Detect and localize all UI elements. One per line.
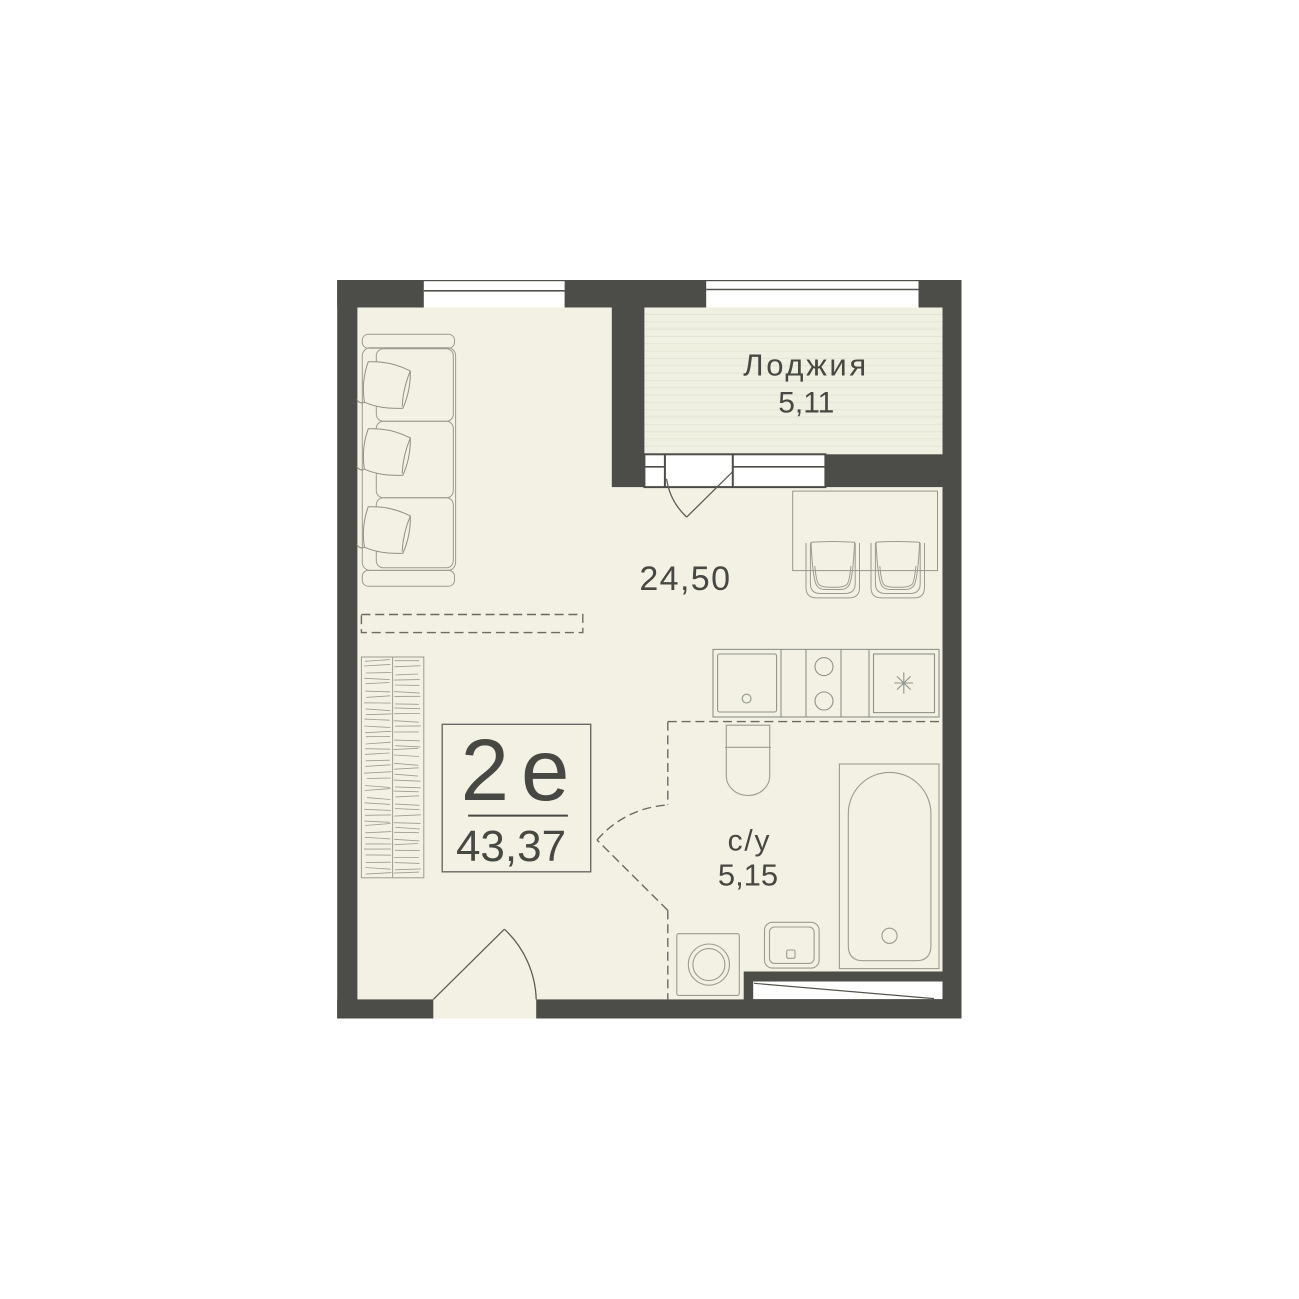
svg-text:с/у: с/у [728, 825, 772, 858]
svg-text:Лоджия: Лоджия [743, 347, 868, 382]
svg-text:43,37: 43,37 [456, 822, 566, 871]
svg-text:24,50: 24,50 [639, 560, 731, 598]
svg-text:2е: 2е [461, 722, 582, 819]
svg-text:5,11: 5,11 [778, 387, 834, 420]
svg-text:5,15: 5,15 [718, 857, 778, 892]
